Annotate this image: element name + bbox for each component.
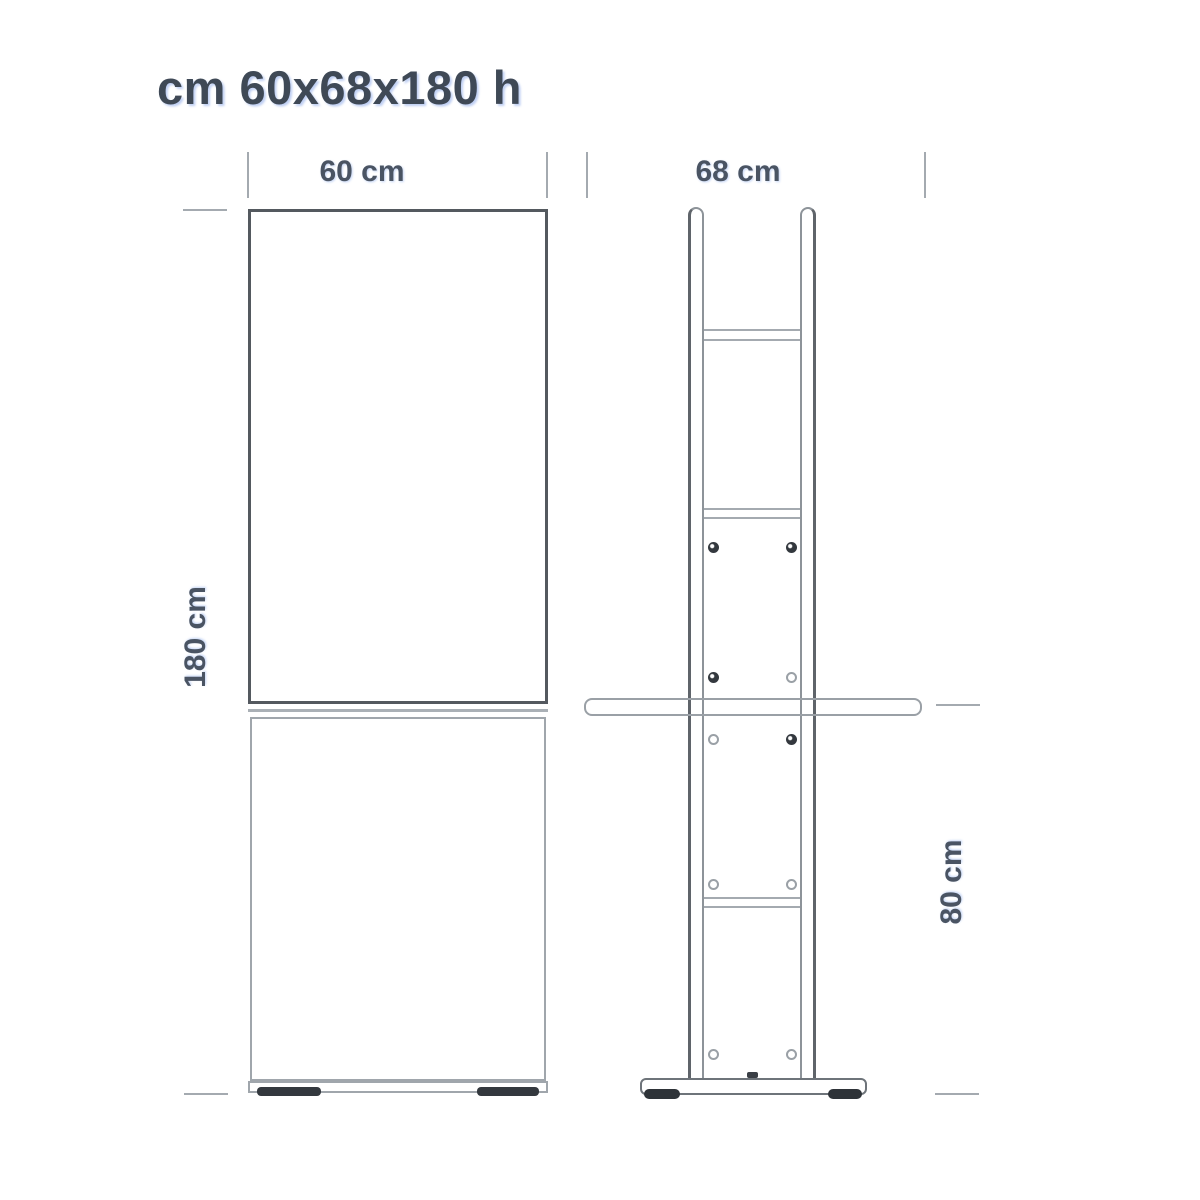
side-base-center-mark <box>747 1072 758 1078</box>
dimension-tick <box>935 1093 979 1095</box>
side-crossbar <box>704 906 800 908</box>
dimension-tick <box>586 152 588 198</box>
side-view: 68 cm 80 cm <box>0 0 1200 1200</box>
side-right-post <box>800 207 816 1080</box>
screw-icon <box>708 542 719 553</box>
side-crossbar <box>704 897 800 899</box>
screw-icon <box>708 672 719 683</box>
dimension-tick <box>936 704 980 706</box>
screw-hole-icon <box>786 879 797 890</box>
screw-hole-icon <box>786 672 797 683</box>
dimension-tick <box>924 152 926 198</box>
technical-drawing: cm 60x68x180 h 60 cm 180 cm 68 cm 80 cm <box>0 0 1200 1200</box>
side-left-post <box>688 207 704 1080</box>
side-crossbar <box>704 339 800 341</box>
side-crossbar <box>704 329 800 331</box>
screw-hole-icon <box>708 734 719 745</box>
side-crossbar <box>704 508 800 510</box>
side-foot-right <box>828 1089 862 1099</box>
side-foot-left <box>644 1089 680 1099</box>
shelf-height-dimension-label: 80 cm <box>935 822 969 942</box>
screw-hole-icon <box>708 879 719 890</box>
screw-hole-icon <box>708 1049 719 1060</box>
screw-icon <box>786 734 797 745</box>
side-shelf <box>584 698 922 716</box>
screw-hole-icon <box>786 1049 797 1060</box>
depth-dimension-label: 68 cm <box>638 155 838 189</box>
side-crossbar <box>704 517 800 519</box>
screw-icon <box>786 542 797 553</box>
